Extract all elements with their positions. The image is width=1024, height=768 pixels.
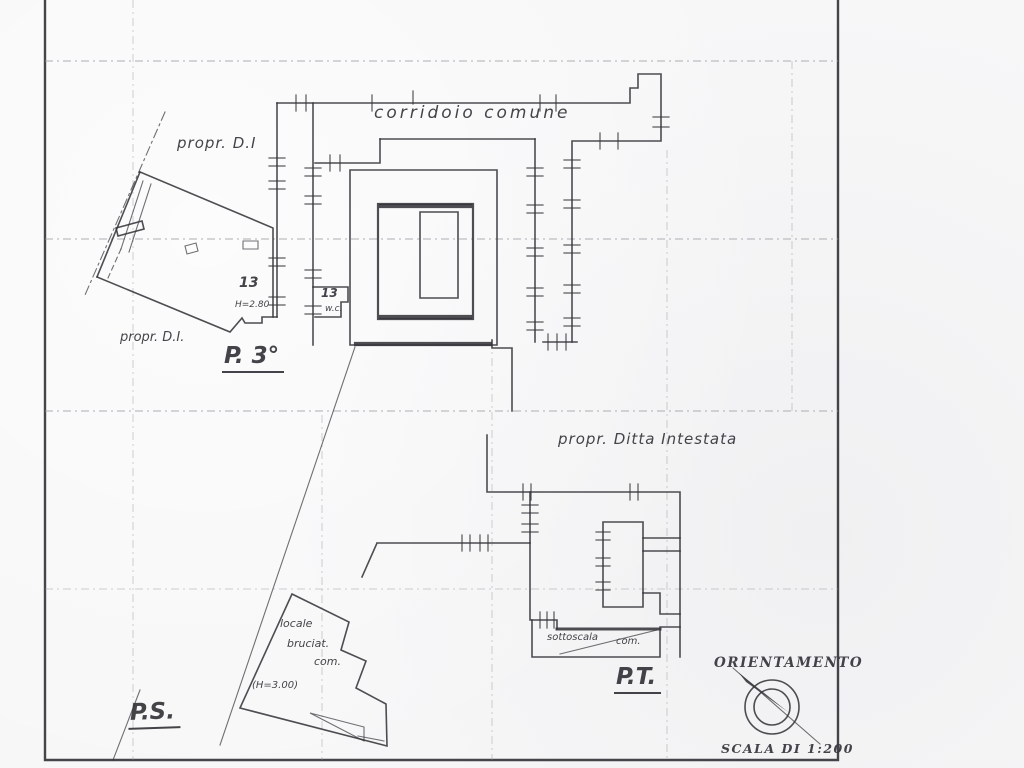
scanned-floor-plan-sheet: corridoio comune propr. D.I propr. D.I. … [0,0,1024,768]
stair-hatch [310,713,364,741]
corridor-label: corridoio comune [374,105,570,122]
reference-lines [113,347,355,760]
plan-third-floor [269,74,669,411]
scale-label: SCALA DI 1:200 [721,743,854,756]
orientation-title: ORIENTAMENTO [714,657,863,671]
room-height-label: H=2.80 [235,301,269,310]
wc-label: w.c. [325,305,342,314]
bruciat-label: bruciat. [287,638,329,649]
floor-label-ps: P.S. [128,700,181,730]
plan-ground-floor [362,435,680,657]
plan-basement [240,594,387,746]
owner-label-bottom: propr. D.I. [120,331,184,344]
floor-label-pt: P.T. [614,666,661,694]
owner-label-top: propr. D.I [177,136,256,151]
basement-height-label: (H=3.00) [252,681,298,691]
compass [733,668,820,744]
stair-treads [643,538,680,627]
sottoscala-com-label: com. [616,637,641,647]
sottoscala-label: sottoscala [547,633,598,643]
locale-label: locale [280,618,312,629]
wc-13-label: 13 [321,287,338,299]
floor-label-p3: P. 3° [222,345,284,373]
compass-needle [739,673,788,712]
com-label: com. [314,656,341,667]
pillar-marks [185,241,258,254]
room-13-label: 13 [239,276,258,290]
ramp-lines [121,181,151,252]
owner-ditta-label: propr. Ditta Intestata [558,432,737,447]
ramp-bar [116,221,144,236]
